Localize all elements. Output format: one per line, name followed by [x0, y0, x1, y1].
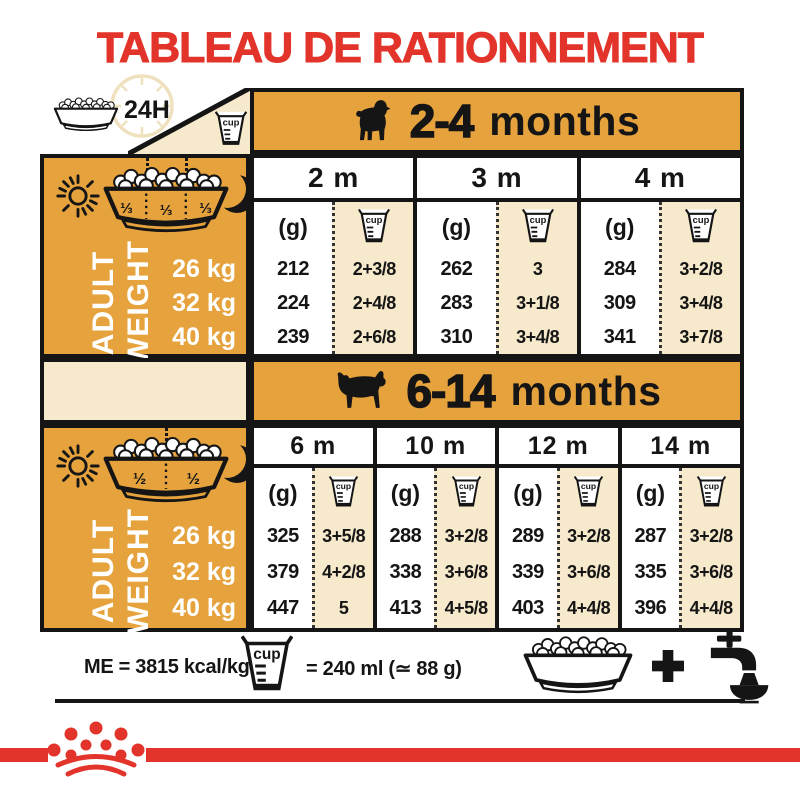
- grams-value: 335: [622, 554, 680, 590]
- cups-value: 5: [315, 590, 373, 626]
- bowl-fraction: ⅓: [160, 202, 173, 219]
- age-unit: months: [511, 368, 662, 415]
- month-header: 2 m: [254, 158, 413, 202]
- cups-value: 4+4/8: [682, 590, 740, 626]
- side-label-adult: ADULT: [87, 506, 121, 636]
- cups-value: 3+4/8: [662, 286, 740, 320]
- grams-value: 284: [581, 252, 659, 286]
- cup-icon: [358, 208, 390, 247]
- grams-header: (g): [278, 202, 307, 252]
- adult-weight-panel-2: ½ ½ ADULT WEIGHT 26 kg 32 kg 40 kg: [40, 424, 250, 632]
- cup-icon: [685, 208, 717, 247]
- grams-value: 288: [377, 518, 435, 554]
- month-header: 12 m: [499, 428, 618, 468]
- cups-value: 2+6/8: [335, 320, 413, 354]
- cup-equivalence: = 240 ml (≃ 88 g): [306, 656, 462, 681]
- divider: [55, 699, 745, 703]
- cups-value: 3: [499, 252, 577, 286]
- month-header: 14 m: [622, 428, 741, 468]
- grams-value: 310: [417, 320, 495, 354]
- feeding-guide-poster: cup: [0, 0, 800, 800]
- grams-value: 341: [581, 320, 659, 354]
- cup-icon: [522, 208, 554, 247]
- brand-stripe-left: [0, 748, 48, 762]
- grams-value: 262: [417, 252, 495, 286]
- cup-icon: [240, 634, 294, 698]
- cups-value: 3+7/8: [662, 320, 740, 354]
- grams-subcolumn: (g) 287 335 396: [622, 468, 680, 628]
- cups-value: 2+3/8: [335, 252, 413, 286]
- month-header: 3 m: [417, 158, 576, 202]
- cups-value: 3+6/8: [437, 554, 495, 590]
- month-column-3m: 3 m (g) 262 283 310 3 3+1/8 3+4/8: [413, 158, 576, 354]
- grams-value: 447: [254, 590, 312, 626]
- cream-spacer: [40, 358, 250, 424]
- weight-row-label: 26 kg: [136, 519, 236, 553]
- sun-icon: [54, 442, 102, 490]
- grams-subcolumn: (g) 262 283 310: [417, 202, 495, 354]
- cups-value: 3+1/8: [499, 286, 577, 320]
- weight-row-label: 26 kg: [136, 252, 236, 286]
- grams-header: (g): [442, 202, 471, 252]
- weight-row-label: 40 kg: [136, 591, 236, 625]
- daily-bowl-icon: [52, 96, 120, 134]
- ration-table-6-14-months: 6 m (g) 325 379 447 3+5/8 4+2/8 5 10 m: [250, 424, 744, 632]
- cups-subcolumn: 2+3/8 2+4/8 2+6/8: [332, 202, 413, 354]
- cups-value: 3+4/8: [499, 320, 577, 354]
- grams-subcolumn: (g) 284 309 341: [581, 202, 659, 354]
- cups-value: 3+6/8: [682, 554, 740, 590]
- grams-header: (g): [513, 468, 542, 518]
- cups-subcolumn: 3+2/8 3+6/8 4+5/8: [434, 468, 495, 628]
- cups-subcolumn: 3 3+1/8 3+4/8: [496, 202, 577, 354]
- grams-value: 283: [417, 286, 495, 320]
- age-band-2-4-months: 2-4 months: [250, 88, 744, 154]
- adult-weight-panel-1: ⅓ ⅓ ⅓ ADULT WEIGHT 26 kg 32 kg 40 kg: [40, 154, 250, 358]
- grams-header: (g): [636, 468, 665, 518]
- grams-header: (g): [268, 468, 297, 518]
- weight-row-label: 32 kg: [136, 555, 236, 589]
- grams-value: 212: [254, 252, 332, 286]
- ration-table-2-4-months: 2 m (g) 212 224 239 2+3/8 2+4/8 2+6/8 3 …: [250, 154, 744, 358]
- cups-value: 4+4/8: [560, 590, 618, 626]
- cups-subcolumn: 3+5/8 4+2/8 5: [312, 468, 373, 628]
- grams-value: 287: [622, 518, 680, 554]
- cup-icon: [452, 475, 481, 511]
- grams-header: (g): [605, 202, 634, 252]
- moon-icon: [208, 440, 246, 478]
- month-header: 10 m: [377, 428, 496, 468]
- month-column-12m: 12 m (g) 289 339 403 3+2/8 3+6/8 4+4/8: [495, 428, 618, 628]
- grams-value: 309: [581, 286, 659, 320]
- cups-value: 3+2/8: [662, 252, 740, 286]
- cups-value: 3+2/8: [437, 518, 495, 554]
- puppy-icon: [354, 97, 394, 145]
- bowl-fraction: ⅓: [199, 200, 212, 217]
- side-label-adult: ADULT: [87, 238, 121, 368]
- cup-icon: [574, 475, 603, 511]
- cup-icon: [329, 475, 358, 511]
- age-unit: months: [489, 98, 640, 145]
- cups-value: 4+5/8: [437, 590, 495, 626]
- bowl-fraction: ⅓: [120, 200, 133, 217]
- water-faucet-icon: [690, 628, 770, 704]
- month-header: 6 m: [254, 428, 373, 468]
- month-column-14m: 14 m (g) 287 335 396 3+2/8 3+6/8 4+4/8: [618, 428, 741, 628]
- grams-subcolumn: (g) 288 338 413: [377, 468, 435, 628]
- cups-value: 3+5/8: [315, 518, 373, 554]
- royal-canin-crown-logo: [44, 718, 148, 778]
- cups-value: 3+6/8: [560, 554, 618, 590]
- footer-legend: ME = 3815 kcal/kg = 240 ml (≃ 88 g): [40, 632, 744, 702]
- cups-subcolumn: 3+2/8 3+6/8 4+4/8: [557, 468, 618, 628]
- grams-value: 379: [254, 554, 312, 590]
- grams-subcolumn: (g) 289 339 403: [499, 468, 557, 628]
- cups-value: 3+2/8: [560, 518, 618, 554]
- age-range: 2-4: [410, 94, 473, 148]
- month-header: 4 m: [581, 158, 740, 202]
- grams-value: 396: [622, 590, 680, 626]
- grams-value: 224: [254, 286, 332, 320]
- grams-subcolumn: (g) 212 224 239: [254, 202, 332, 354]
- grams-value: 239: [254, 320, 332, 354]
- grams-value: 289: [499, 518, 557, 554]
- cups-subcolumn: 3+2/8 3+6/8 4+4/8: [679, 468, 740, 628]
- brand-stripe-right: [146, 748, 800, 762]
- cups-subcolumn: 3+2/8 3+4/8 3+7/8: [659, 202, 740, 354]
- bowl-fraction: ½: [133, 470, 146, 488]
- dog-icon: [332, 369, 390, 413]
- grams-value: 413: [377, 590, 435, 626]
- sun-icon: [54, 172, 102, 220]
- weight-row-label: 32 kg: [136, 286, 236, 320]
- plus-icon: [652, 650, 684, 682]
- grams-header: (g): [391, 468, 420, 518]
- kibble-bowl-icon: [503, 634, 653, 698]
- cup-icon: [697, 475, 726, 511]
- month-column-6m: 6 m (g) 325 379 447 3+5/8 4+2/8 5: [254, 428, 373, 628]
- metabolizable-energy: ME = 3815 kcal/kg: [84, 656, 250, 679]
- grams-value: 325: [254, 518, 312, 554]
- grams-value: 338: [377, 554, 435, 590]
- weight-row-label: 40 kg: [136, 320, 236, 354]
- cups-value: 3+2/8: [682, 518, 740, 554]
- grams-value: 339: [499, 554, 557, 590]
- age-band-6-14-months: 6-14 months: [250, 358, 744, 424]
- cups-value: 2+4/8: [335, 286, 413, 320]
- month-column-4m: 4 m (g) 284 309 341 3+2/8 3+4/8 3+7/8: [577, 158, 740, 354]
- moon-icon: [208, 170, 246, 208]
- month-column-2m: 2 m (g) 212 224 239 2+3/8 2+4/8 2+6/8: [254, 158, 413, 354]
- age-range: 6-14: [406, 364, 494, 418]
- grams-subcolumn: (g) 325 379 447: [254, 468, 312, 628]
- cup-icon: [215, 110, 247, 150]
- page-title: TABLEAU DE RATIONNEMENT: [0, 24, 800, 73]
- month-column-10m: 10 m (g) 288 338 413 3+2/8 3+6/8 4+5/8: [373, 428, 496, 628]
- bowl-fraction: ½: [187, 470, 200, 488]
- grams-value: 403: [499, 590, 557, 626]
- cups-value: 4+2/8: [315, 554, 373, 590]
